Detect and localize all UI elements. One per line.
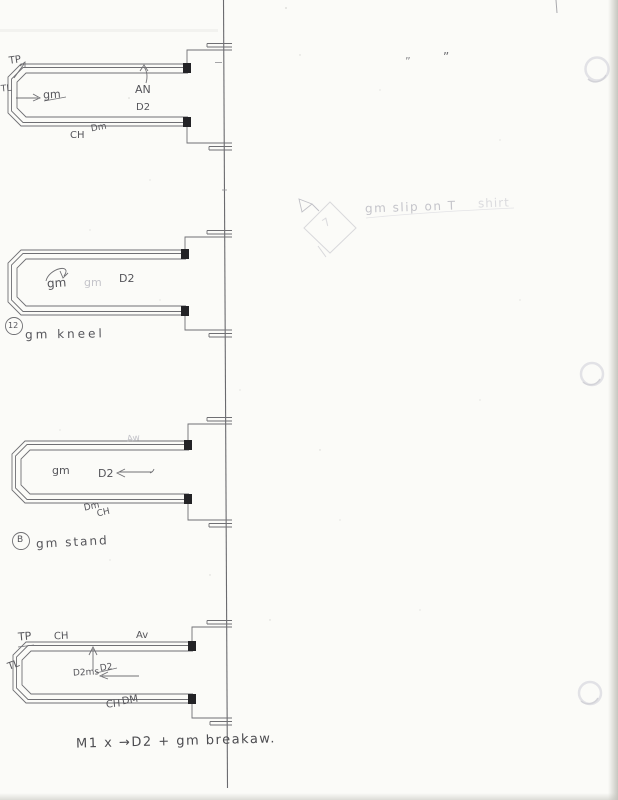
cue-gm-stand: gm stand bbox=[36, 534, 109, 550]
annotation-tp: TP bbox=[18, 630, 32, 642]
note-gm-slip-on: gm slip on T bbox=[365, 199, 457, 214]
annotation-d2ms: D2ms bbox=[73, 668, 100, 678]
ditto-mark: ” bbox=[443, 51, 449, 63]
annotation-gm: gm bbox=[52, 465, 70, 476]
diamond-mark: 7 bbox=[320, 216, 332, 229]
annotation-ch: CH bbox=[96, 508, 111, 520]
annotation-av: Av bbox=[136, 631, 148, 641]
ditto-mark: ” bbox=[405, 56, 411, 67]
scene-badge: B bbox=[17, 536, 23, 545]
annotation-dm: DM bbox=[121, 695, 139, 708]
annotation-gm-ghost: gm bbox=[84, 277, 102, 288]
annotation-ch: CH bbox=[106, 699, 121, 710]
annotation-tl: TL bbox=[1, 85, 12, 95]
annotation-d2: D2 bbox=[98, 468, 113, 479]
paper-bottom-edge bbox=[0, 793, 618, 800]
annotation-an: AN bbox=[135, 84, 151, 95]
annotation-d2: D2 bbox=[119, 273, 134, 284]
cue-gm-kneel: gm kneel bbox=[25, 327, 105, 340]
scanned-sketch-page: TP TL gm AN D2 Dm CH gm gm D2 12 gm knee… bbox=[0, 0, 618, 800]
annotation-d2: D2 bbox=[136, 103, 150, 113]
paper-right-edge bbox=[608, 0, 618, 800]
annotation-layer: TP TL gm AN D2 Dm CH gm gm D2 12 gm knee… bbox=[0, 0, 618, 800]
annotation-ch: CH bbox=[70, 131, 85, 141]
caption-gm-break: M1 x →D2 + gm breakaw. bbox=[76, 732, 276, 750]
scene-badge: 12 bbox=[8, 322, 18, 330]
annotation-ch: CH bbox=[54, 632, 69, 643]
note-tail: shirt bbox=[478, 196, 510, 209]
annotation-gm: gm bbox=[43, 89, 61, 101]
annotation-aw: Aw bbox=[126, 434, 140, 445]
annotation-tl: TL bbox=[7, 659, 21, 672]
annotation-tp: TP bbox=[8, 55, 21, 67]
annotation-d2-struck: D2 bbox=[99, 663, 113, 674]
annotation-gm: gm bbox=[47, 276, 67, 289]
annotation-dm: Dm bbox=[90, 123, 107, 135]
